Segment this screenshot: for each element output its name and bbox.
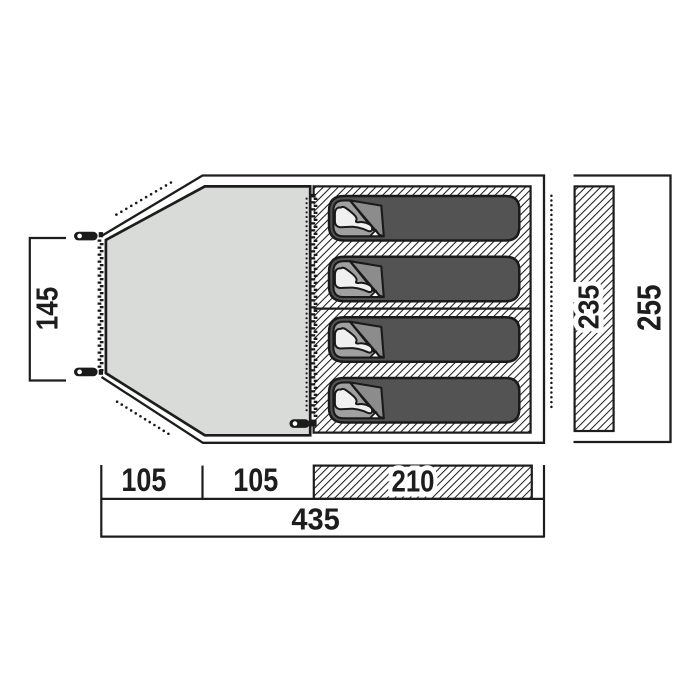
- svg-text:435: 435: [291, 502, 340, 537]
- svg-text:145: 145: [30, 287, 65, 331]
- svg-text:210: 210: [392, 464, 435, 499]
- svg-text:105: 105: [121, 462, 166, 498]
- svg-text:105: 105: [233, 462, 278, 498]
- svg-text:255: 255: [631, 284, 668, 331]
- svg-text:235: 235: [574, 285, 606, 330]
